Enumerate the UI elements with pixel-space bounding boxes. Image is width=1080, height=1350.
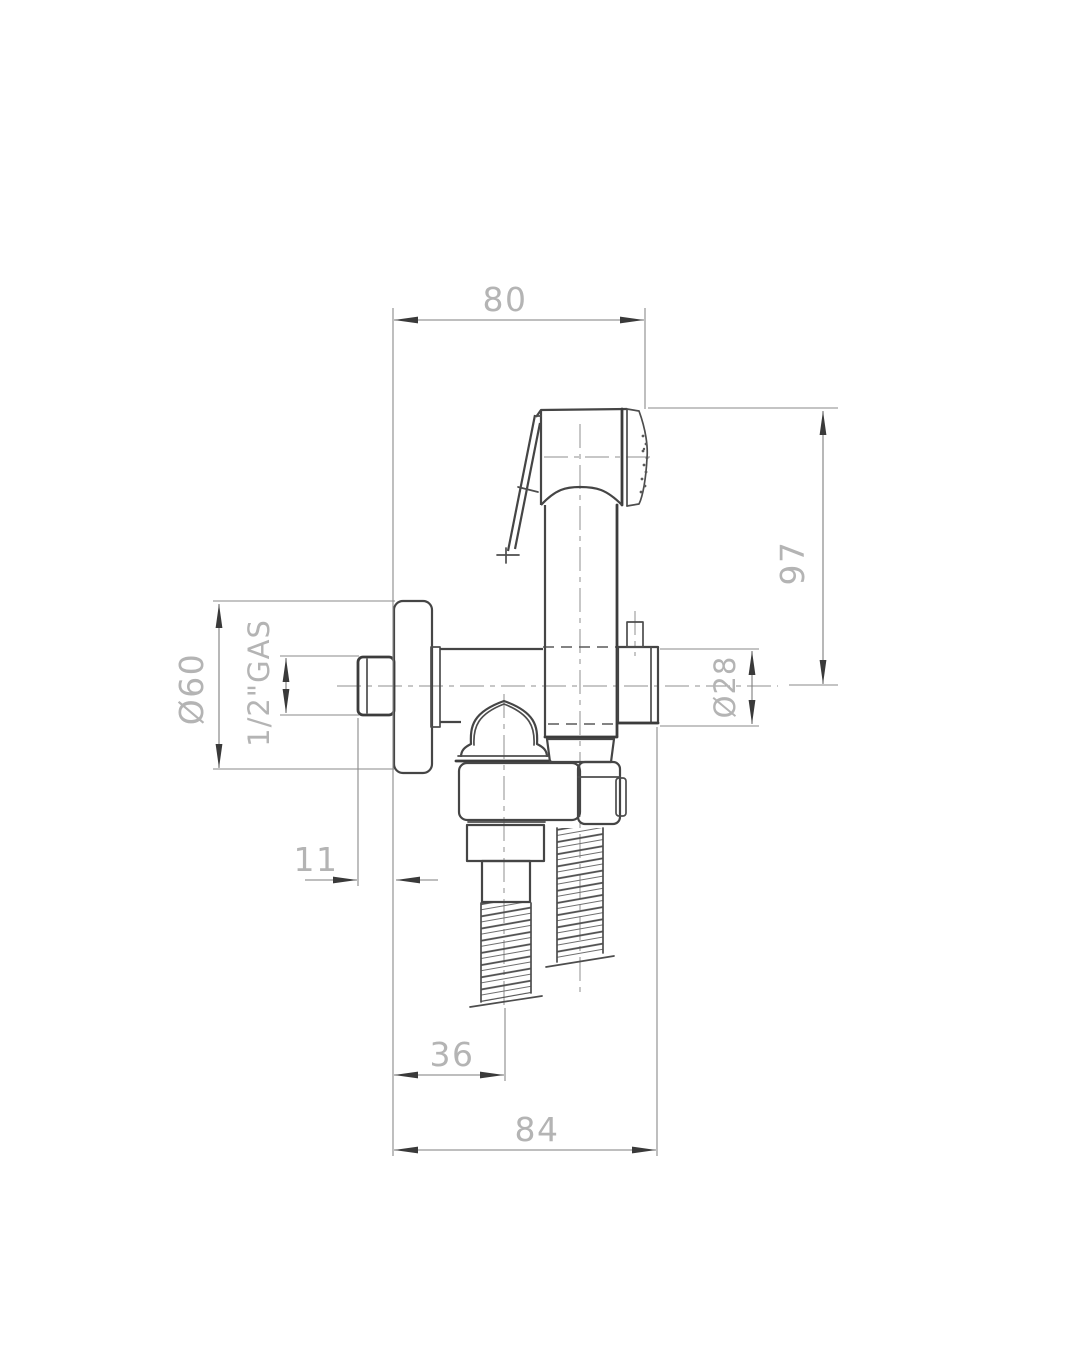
dim-right-height: 97	[648, 408, 838, 685]
sprayer-handle	[545, 505, 617, 737]
dim-thread-size: 1/2"GAS	[242, 619, 359, 747]
valve-bonnet-dome	[456, 701, 550, 761]
dim-body-diameter: Ø28	[660, 649, 759, 726]
dim-label-d28: Ø28	[708, 656, 742, 719]
valve-block	[459, 763, 580, 820]
sprayer-spiral-hose	[546, 828, 614, 967]
dim-label-97: 97	[773, 541, 812, 586]
inlet-spiral-hose	[470, 903, 542, 1007]
dim-label-36: 36	[430, 1035, 475, 1074]
dim-outlet-offset: 36	[394, 1008, 505, 1081]
dim-label-80: 80	[483, 280, 528, 319]
dim-label-11: 11	[294, 840, 339, 879]
inlet-hose-fitting	[482, 861, 530, 902]
technical-drawing-canvas: 80 97 Ø60 1/2"GAS Ø28 11	[0, 0, 1080, 1350]
knurled-nut	[467, 822, 545, 861]
dim-label-thread: 1/2"GAS	[242, 619, 276, 747]
sprayer-holder-block	[618, 647, 658, 723]
dim-flange-diameter: Ø60	[172, 601, 395, 769]
drawing-svg: 80 97 Ø60 1/2"GAS Ø28 11	[0, 0, 1080, 1350]
dim-stub-projection: 11	[294, 718, 439, 886]
wall-flange	[394, 601, 440, 773]
trigger-lever	[497, 415, 541, 563]
dim-label-84: 84	[515, 1110, 560, 1149]
hose-elbow-block	[578, 762, 626, 824]
dim-label-d60: Ø60	[172, 653, 211, 725]
